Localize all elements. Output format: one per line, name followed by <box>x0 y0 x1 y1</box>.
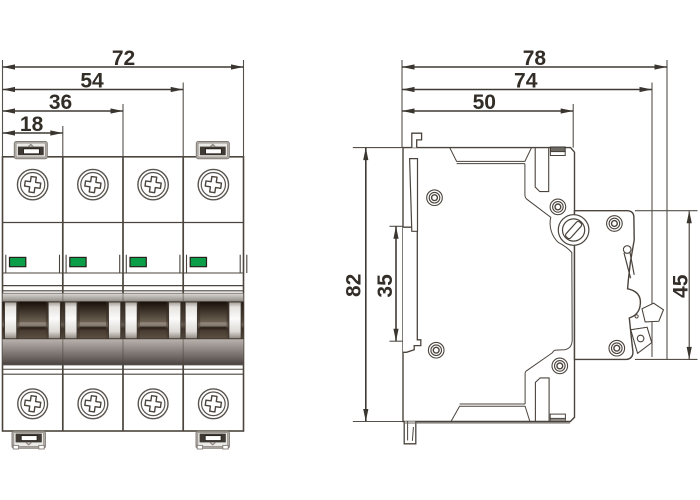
svg-text:35: 35 <box>374 274 397 298</box>
svg-text:45: 45 <box>669 274 692 298</box>
svg-text:82: 82 <box>343 274 366 297</box>
svg-text:74: 74 <box>514 70 538 93</box>
svg-text:78: 78 <box>523 47 547 70</box>
svg-text:54: 54 <box>80 70 104 93</box>
svg-text:50: 50 <box>473 91 496 114</box>
svg-text:18: 18 <box>20 113 44 136</box>
svg-text:72: 72 <box>112 47 135 70</box>
svg-text:36: 36 <box>49 91 72 114</box>
